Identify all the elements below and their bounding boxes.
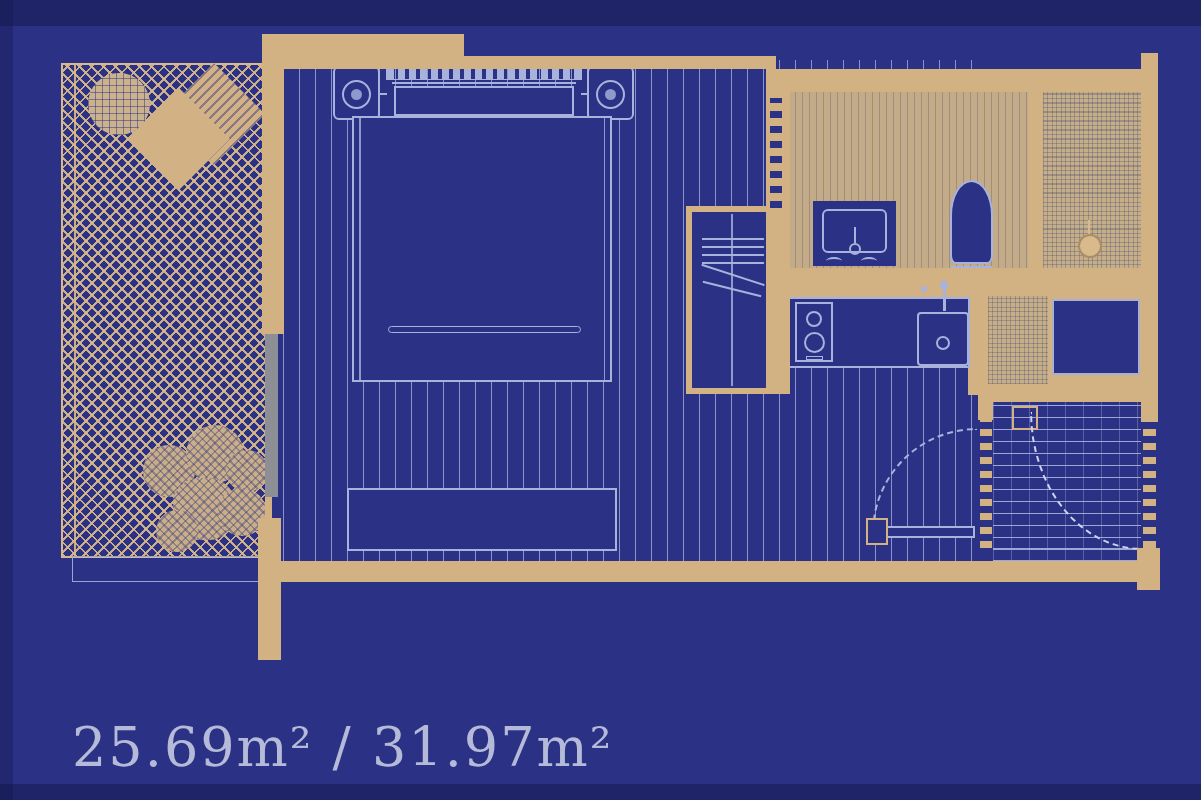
- hall-door-leaf: [875, 526, 975, 538]
- hanger-line: [702, 246, 764, 248]
- balcony-railing-line: [74, 65, 76, 556]
- burner-small: [806, 311, 822, 327]
- bed-side-line-left: [359, 118, 361, 380]
- hall-door-end-block: [866, 518, 888, 545]
- lamp-right-dot: [605, 89, 616, 100]
- sink-drain: [936, 336, 950, 350]
- sliding-door-glass: [265, 334, 278, 497]
- wall-right-column-top: [1141, 53, 1158, 93]
- bed-connector-left: [379, 93, 387, 95]
- vanity-faucet-stem: [854, 227, 856, 243]
- bed-connector-right: [581, 93, 589, 95]
- hanger-line: [702, 254, 764, 256]
- entry-top-wall: [978, 388, 1143, 402]
- pocket-door-dashes: [770, 98, 782, 208]
- washer: [1052, 299, 1140, 375]
- wall-right: [1141, 92, 1158, 422]
- wall-bottom: [280, 561, 1160, 582]
- wall-top-bedroom: [262, 56, 776, 69]
- wall-left-stub: [258, 518, 281, 660]
- foot-bench: [347, 488, 617, 551]
- utility-niche: [988, 296, 1048, 384]
- cooktop-control: [806, 356, 823, 360]
- blanket-fold-line: [388, 326, 581, 333]
- area-label: 25.69m² / 31.97m²: [72, 716, 613, 779]
- wall-top-bathroom: [768, 69, 1143, 92]
- faucet-knob: [940, 281, 948, 289]
- hanger-line: [702, 262, 764, 264]
- vignette-top: [0, 0, 1201, 26]
- entry-left-threshold-dashes: [980, 420, 992, 548]
- towel-arc: [826, 257, 842, 265]
- vignette-bottom: [0, 784, 1201, 800]
- kitchen-sink: [917, 312, 969, 366]
- entry-right-threshold-dashes: [1143, 420, 1156, 548]
- wall-balcony-divider: [262, 60, 284, 334]
- shower-stem: [1088, 220, 1090, 234]
- bed-side-line-right: [604, 118, 606, 380]
- entry-left-wall-stub: [978, 400, 993, 420]
- floorplan-canvas: 25.69m² / 31.97m²: [0, 0, 1201, 800]
- cooktop: [795, 302, 833, 362]
- hanger-line: [702, 238, 764, 240]
- vignette-left: [0, 0, 13, 800]
- headboard-underline: [392, 82, 576, 84]
- burner-large: [804, 332, 825, 353]
- plant: [138, 420, 268, 555]
- shower-drain-icon: [1078, 234, 1102, 258]
- toilet: [950, 180, 993, 264]
- pillow: [394, 86, 574, 116]
- faucet-dot: [921, 286, 927, 292]
- wall-divider-thin: [265, 497, 272, 521]
- lamp-left-dot: [351, 89, 362, 100]
- vanity-faucet-ring: [849, 243, 861, 255]
- vanity-sink: [813, 201, 896, 266]
- double-bed: [352, 116, 612, 382]
- balcony-planter-outline: [72, 556, 262, 582]
- bath-shower-divider-wall: [1028, 90, 1043, 270]
- towel-arc: [861, 257, 877, 265]
- kitchen-counter: [787, 297, 970, 368]
